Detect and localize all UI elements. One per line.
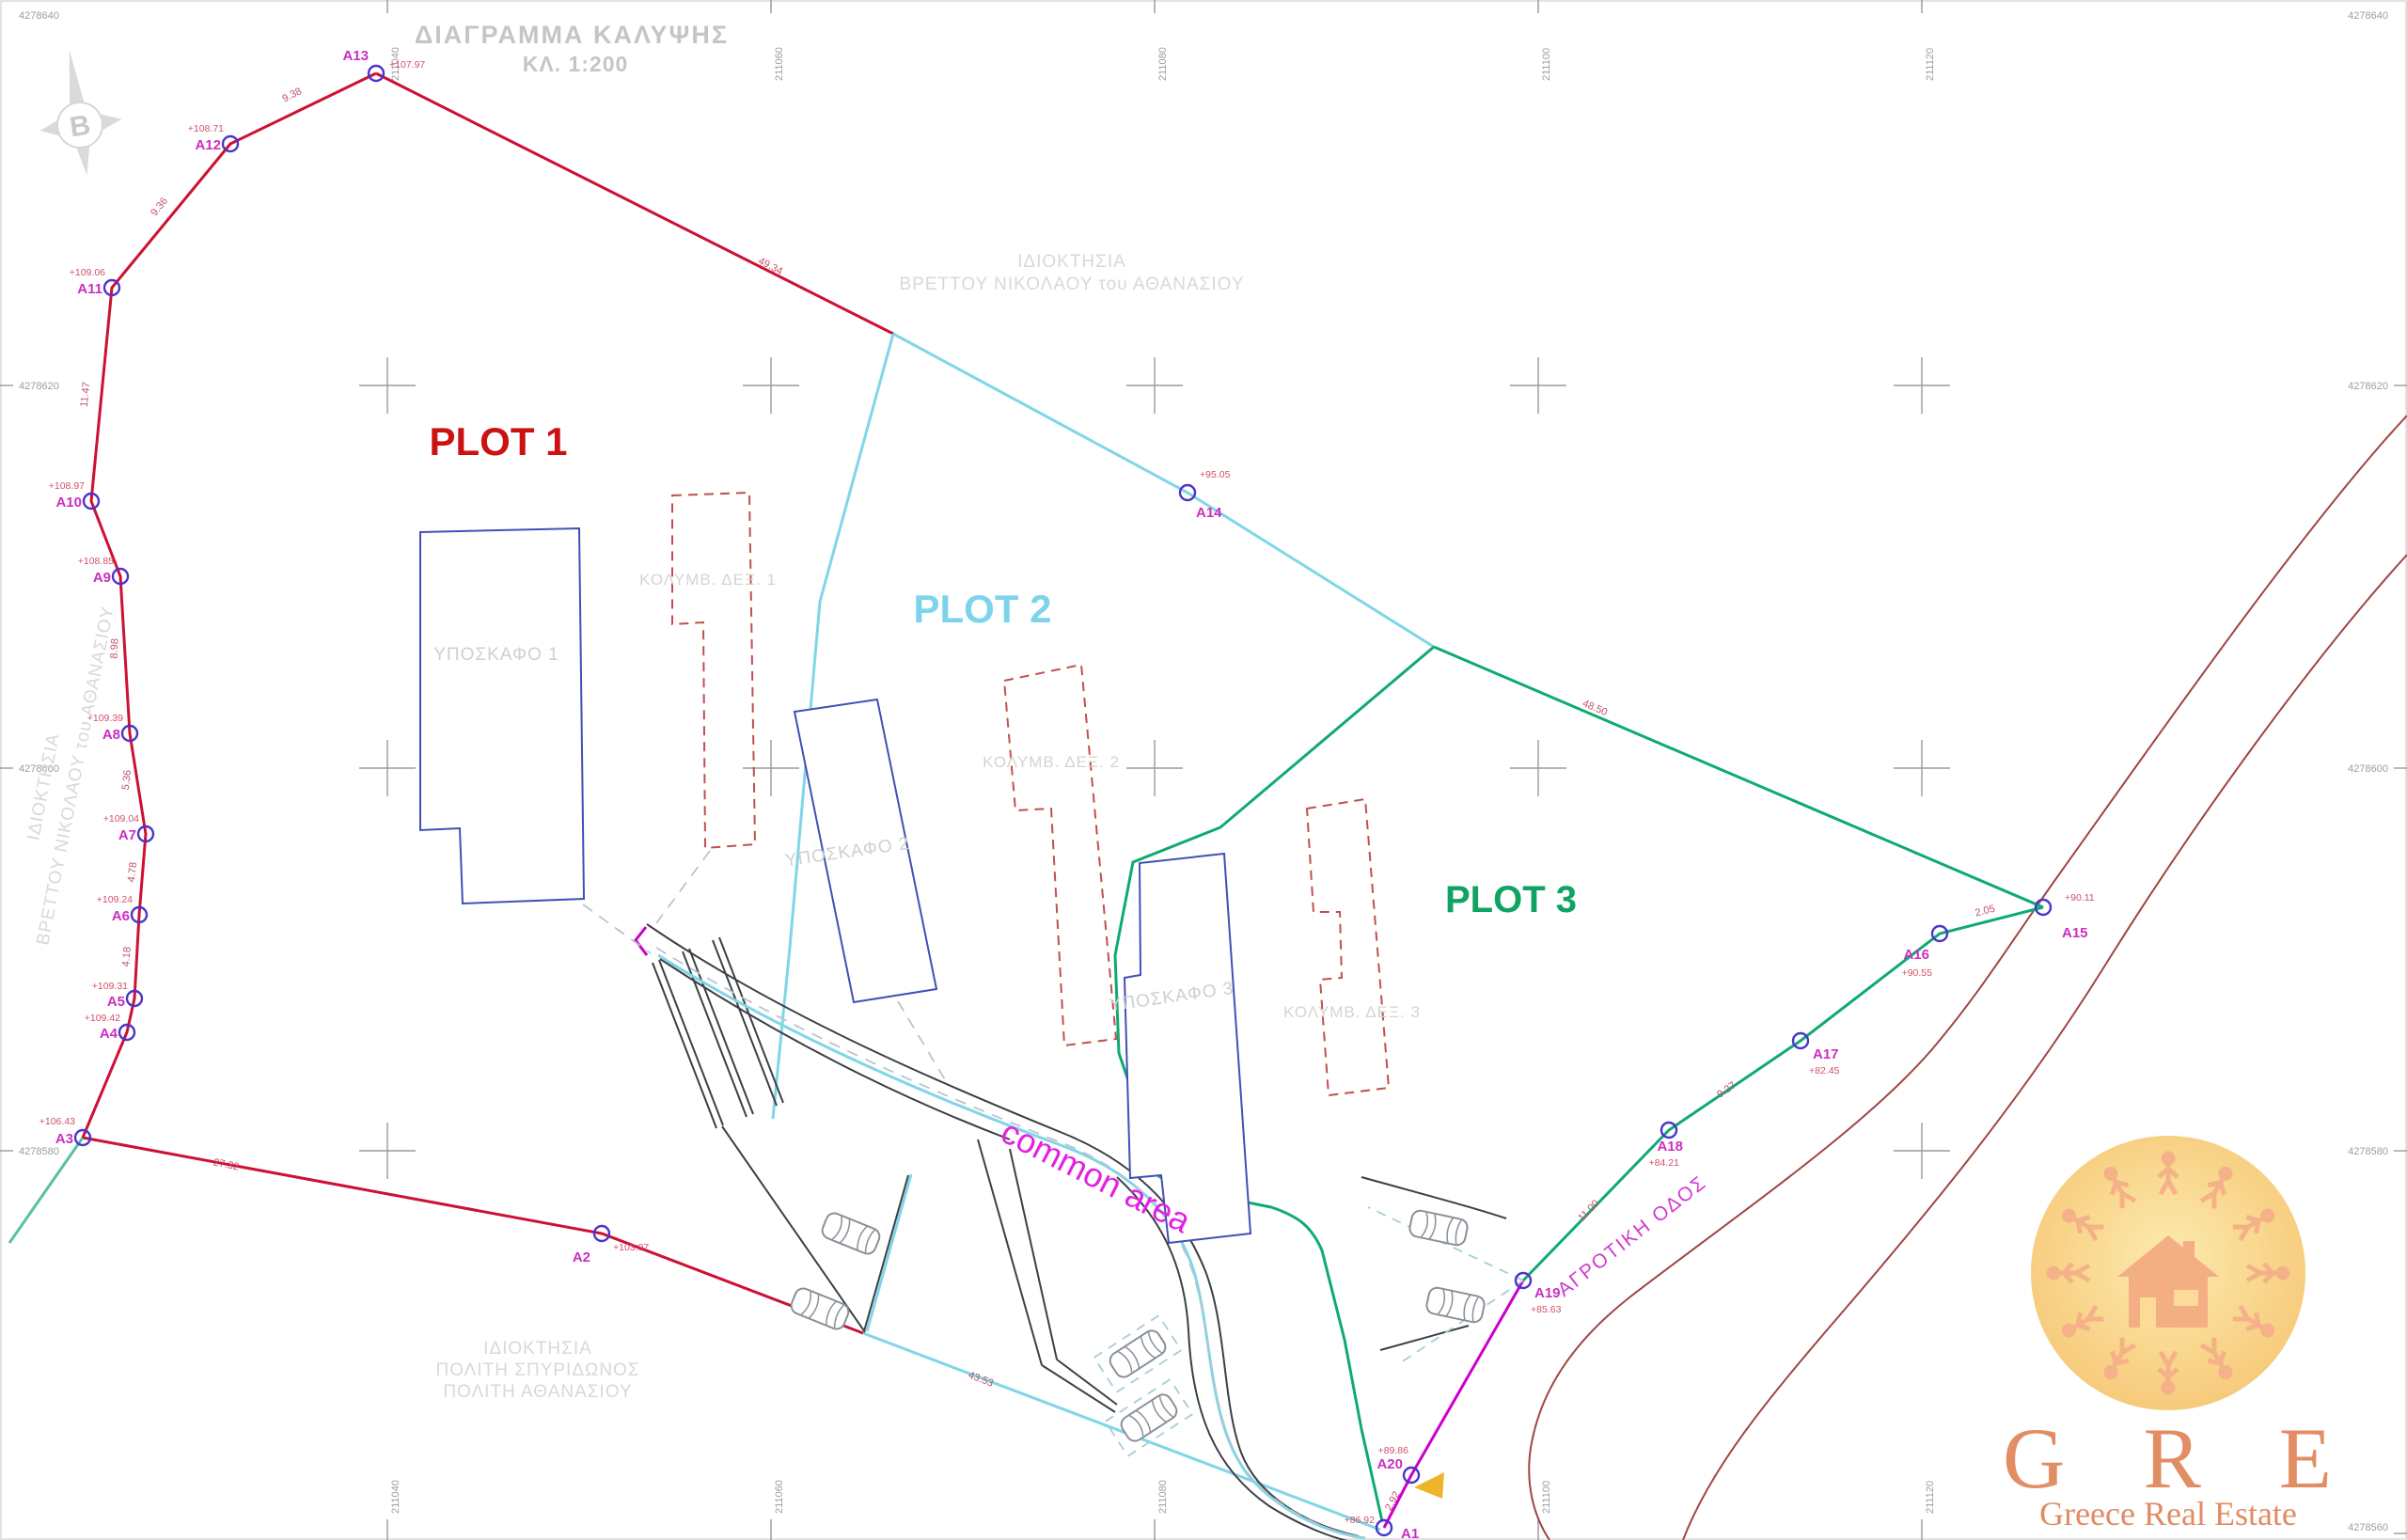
vertex-elevation: +107.97 bbox=[389, 59, 425, 71]
vertex-elevation: +89.86 bbox=[1378, 1445, 1409, 1456]
vertex-elevation: +109.24 bbox=[97, 894, 133, 905]
vertex-label: A12 bbox=[195, 137, 221, 153]
plot3-boundary-east bbox=[1523, 907, 2043, 1281]
grid-coordinate-label: 211120 bbox=[1925, 48, 1936, 81]
grid-coordinate-label: 211080 bbox=[1157, 47, 1169, 81]
dimension-label: 11.47 bbox=[79, 382, 93, 408]
vertex-elevation: +109.06 bbox=[70, 267, 105, 278]
plot3-boundary-north bbox=[1434, 647, 2043, 907]
vertex-elevation: +90.11 bbox=[2065, 892, 2095, 904]
dimension-label: 2.92 bbox=[1383, 1489, 1403, 1513]
grid-coordinate-label: 4278580 bbox=[19, 1146, 59, 1157]
vertex-label: A9 bbox=[93, 570, 111, 586]
dimension-label: 9.27 bbox=[1715, 1080, 1738, 1101]
pool-label: ΚΟΛΥΜΒ. ΔΕΞ. 3 bbox=[1283, 1003, 1421, 1021]
vertex-label: A7 bbox=[118, 827, 136, 843]
grid-coordinate-label: 211120 bbox=[1925, 1481, 1936, 1514]
vertex-elevation: +109.04 bbox=[103, 813, 139, 825]
dimension-label: 2.05 bbox=[1974, 904, 1996, 919]
car-icon bbox=[820, 1211, 882, 1256]
vertex-label: A6 bbox=[112, 908, 130, 924]
dimension-label: 49.34 bbox=[756, 256, 784, 277]
vertex-elevation: +82.45 bbox=[1809, 1065, 1840, 1076]
boundary-west bbox=[83, 73, 376, 1138]
vertex-label: A1 bbox=[1401, 1526, 1419, 1540]
vertex-label: A15 bbox=[2062, 925, 2088, 941]
vertex-elevation: +108.85 bbox=[78, 556, 114, 567]
north-neighbor-owner: ΙΔΙΟΚΤΗΣΙΑ bbox=[1017, 252, 1126, 272]
vertex-label: A18 bbox=[1657, 1139, 1683, 1155]
drawing-title: ΔΙΑΓΡΑΜΜΑ ΚΑΛΥΨΗΣ bbox=[415, 21, 729, 49]
building-label: ΥΠΟΣΚΑΦΟ 1 bbox=[433, 645, 559, 665]
vertex-label: A16 bbox=[1903, 947, 1929, 963]
grid-coordinate-label: 4278580 bbox=[2348, 1146, 2388, 1157]
vertex-label: A10 bbox=[55, 495, 82, 511]
south-neighbor-owner: ΙΔΙΟΚΤΗΣΙΑ bbox=[483, 1339, 592, 1359]
drawing-scale: ΚΛ. 1:200 bbox=[523, 52, 629, 76]
dimension-label: 43.53 bbox=[967, 1370, 995, 1390]
grid-coordinate-label: 4278640 bbox=[19, 10, 59, 22]
site-plan-canvas: 211040 211060 211080 211100 211120 21104… bbox=[0, 0, 2407, 1540]
driveway-cyan-line bbox=[658, 955, 1365, 1538]
vertex-elevation: +108.97 bbox=[49, 480, 85, 492]
vertex-elevation: +109.42 bbox=[85, 1013, 120, 1024]
grid-coordinate-label: 211100 bbox=[1541, 48, 1552, 81]
grid-coordinate-label: 4278600 bbox=[2348, 763, 2388, 775]
vertex-label: A13 bbox=[342, 48, 369, 64]
vertex-label: A5 bbox=[107, 994, 125, 1010]
vertex-label: A20 bbox=[1377, 1456, 1403, 1472]
driveway-hairpin bbox=[636, 927, 647, 955]
south-neighbor-owner: ΠΟΛΙΤΗ ΑΘΑΝΑΣΙΟΥ bbox=[443, 1382, 632, 1402]
boundary-south bbox=[83, 1138, 863, 1333]
car-icon bbox=[789, 1286, 851, 1331]
vertex-elevation: +85.63 bbox=[1531, 1304, 1562, 1315]
vertex-label: A17 bbox=[1813, 1046, 1839, 1062]
dimension-label: 9.38 bbox=[280, 86, 304, 104]
pool-kolymv-dex-1 bbox=[672, 493, 755, 848]
vertex-elevation: +95.05 bbox=[1200, 469, 1231, 480]
logo-name: Greece Real Estate bbox=[2039, 1495, 2297, 1532]
north-neighbor-owner: ΒΡΕΤΤΟΥ ΝΙΚΟΛΑΟΥ του ΑΘΑΝΑΣΙΟΥ bbox=[900, 275, 1245, 294]
grid-coordinate-label: 4278620 bbox=[2348, 381, 2388, 392]
vertex-elevation: +86.92 bbox=[1345, 1515, 1376, 1526]
plot2-label: PLOT 2 bbox=[913, 587, 1051, 631]
dimension-label: 9.36 bbox=[149, 196, 170, 218]
grid-coordinate-label: 4278620 bbox=[19, 381, 59, 392]
vertex-label: A3 bbox=[55, 1131, 73, 1147]
pool-label: ΚΟΛΥΜΒ. ΔΕΞ. 1 bbox=[639, 571, 777, 589]
rural-road-edge bbox=[1529, 416, 2407, 1540]
grid-coordinate-label: 211100 bbox=[1541, 1481, 1552, 1514]
north-compass-icon: B bbox=[29, 44, 129, 181]
south-neighbor-owner: ΠΟΛΙΤΗ ΣΠΥΡΙΔΩΝΟΣ bbox=[436, 1360, 640, 1380]
gre-logo: G R E Greece Real Estate bbox=[2003, 1136, 2360, 1532]
pool-label: ΚΟΛΥΜΒ. ΔΕΞ. 2 bbox=[983, 753, 1120, 771]
grid-coordinate-label: 4278560 bbox=[2348, 1522, 2388, 1533]
vertex-label: A4 bbox=[100, 1026, 118, 1042]
dimension-label: 27.32 bbox=[212, 1157, 240, 1173]
building-yposkafo-1 bbox=[420, 528, 584, 904]
car-icon bbox=[1118, 1391, 1180, 1444]
rural-road-label: ΑΓΡΟΤΙΚΗ ΟΔΟΣ bbox=[1553, 1171, 1710, 1301]
grid-coordinate-label: 211040 bbox=[390, 1480, 401, 1514]
dimension-label: 4.78 bbox=[126, 861, 139, 883]
vertex-elevation: +109.39 bbox=[87, 713, 123, 724]
vertex-elevation: +108.71 bbox=[188, 123, 224, 134]
vertex-label: A19 bbox=[1534, 1285, 1561, 1301]
vertex-elevation: +103.97 bbox=[613, 1242, 649, 1253]
dimension-label: 4.18 bbox=[120, 947, 134, 967]
vertex-label: A11 bbox=[77, 281, 102, 297]
boundary-north bbox=[376, 73, 893, 334]
plot3-label: PLOT 3 bbox=[1445, 879, 1577, 920]
compass-north-letter: B bbox=[68, 110, 92, 144]
dimension-label: 5.36 bbox=[120, 769, 134, 791]
car-icon bbox=[1408, 1209, 1470, 1247]
vertex-elevation: +106.43 bbox=[39, 1116, 75, 1127]
pool-kolymv-dex-3 bbox=[1307, 799, 1389, 1095]
parking-bay3-edge bbox=[1361, 1177, 1506, 1350]
car-icon bbox=[1107, 1328, 1169, 1380]
pool-kolymv-dex-2 bbox=[1004, 665, 1116, 1045]
vertex-label: A8 bbox=[102, 727, 120, 743]
vertex-label: A2 bbox=[573, 1249, 590, 1265]
grid-coordinate-label: 211060 bbox=[774, 1480, 785, 1514]
logo-initials: G R E bbox=[2003, 1410, 2360, 1506]
grid-coordinate-label: 211060 bbox=[774, 47, 785, 81]
vertex-elevation: +90.55 bbox=[1902, 967, 1933, 979]
vertex-label: A14 bbox=[1196, 505, 1222, 521]
vertex-elevation: +84.21 bbox=[1649, 1157, 1680, 1169]
grid-coordinate-label: 4278640 bbox=[2348, 10, 2388, 22]
dimension-label: 8.98 bbox=[108, 638, 120, 659]
common-area-boundary bbox=[867, 1174, 911, 1331]
plot1-label: PLOT 1 bbox=[429, 419, 567, 464]
car-icon bbox=[1425, 1286, 1487, 1324]
grid-coordinate-label: 211080 bbox=[1157, 1480, 1169, 1514]
vertex-elevation: +109.31 bbox=[92, 981, 128, 992]
